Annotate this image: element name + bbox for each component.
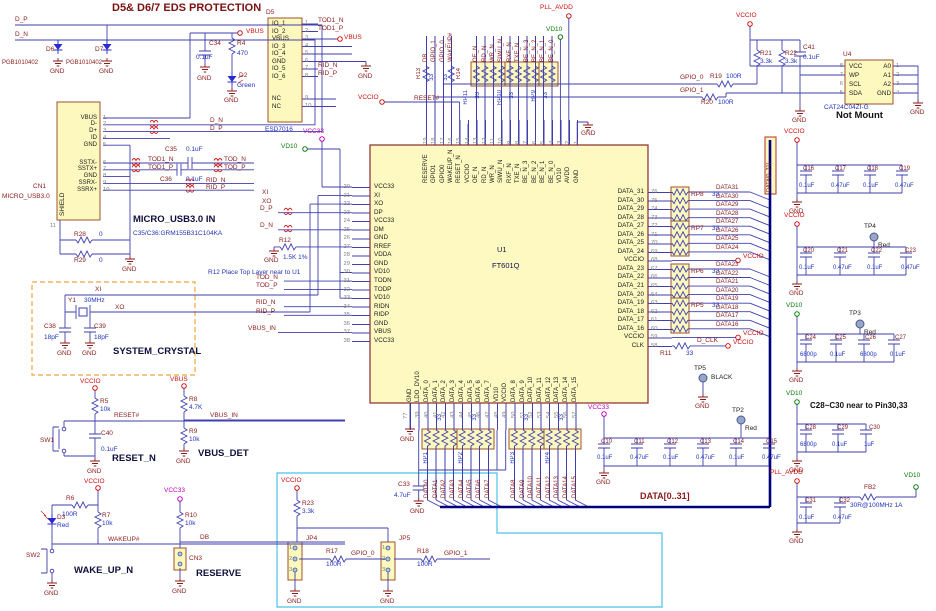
d5-ref: D5	[266, 9, 274, 16]
net-dp: D_P	[15, 16, 28, 23]
d3-ref: D3	[57, 514, 65, 521]
c28-bank-vals: 6800p0.1uF1uF	[800, 442, 896, 449]
vccio-port: VCCIO	[358, 94, 379, 101]
net-vbusin: VBUS_IN	[210, 412, 238, 419]
gnd-label: GND	[910, 109, 924, 116]
net-reset: RESET#	[114, 412, 139, 419]
gnd-label: GND	[380, 598, 394, 605]
net-xi: XI	[262, 189, 268, 196]
r28-val: 0	[99, 231, 103, 238]
vccio-port: VCCIO	[743, 253, 764, 260]
rp6-ref: RP6	[691, 268, 704, 275]
vccio-port: VCCIO	[80, 378, 101, 385]
rp11-ref: RP11	[463, 90, 470, 105]
d5-nc-pins: NCNC	[272, 95, 281, 110]
gnd-label: GND	[789, 538, 803, 545]
r29-ref: R29	[74, 257, 86, 264]
net-ridp: RID_P	[206, 184, 225, 191]
net-todp: TOD_P	[224, 164, 246, 171]
r22-val: 3.3k	[785, 58, 797, 65]
net-todn: TOD_N	[256, 274, 278, 281]
r14-val: 33	[443, 74, 450, 81]
r7-ref: R7	[102, 512, 110, 519]
bus-label: DATA[0..31]	[640, 493, 690, 500]
tp5-color: BLACK	[711, 374, 732, 381]
r12-note: R12 Place Top Layer near to U1	[208, 269, 300, 276]
rp10-val: 33	[509, 92, 516, 99]
u1-pad-num: 77	[403, 407, 410, 419]
tp3-ref: TP3	[849, 310, 861, 317]
c20-bank-refs: C20C21C22C23	[803, 248, 936, 255]
r10-val: 10k	[185, 520, 195, 527]
led-d2	[228, 72, 237, 86]
net-gpio0: GPIO_0	[351, 550, 374, 557]
c28-note: C28~C30 near to Pin30,33	[810, 402, 908, 409]
r5-ref: R5	[100, 398, 108, 405]
rp9-val: 33	[543, 92, 550, 99]
vd10-port: VD10	[904, 472, 920, 479]
c33-val: 4.7uF	[394, 492, 411, 499]
r20-val: 100R	[718, 99, 734, 106]
top-signals-b: OE_NRD_NWR_NSIWU_NRXF_NTXE_NBE_N_3BE_N_2…	[472, 26, 556, 62]
u1-top-pins: RESERVEGPIO1GPIO0WAKEUP_NRESET_NVCCIOOE_…	[422, 147, 581, 183]
u4-left-nums: 8765	[834, 62, 843, 98]
vccio-port: VCCIO	[743, 330, 764, 337]
r19-val: 100R	[726, 73, 742, 80]
net-dn: D_N	[15, 31, 28, 38]
c10-bank-vals: 0.1uF0.47uF0.1uF0.47uF0.1uF0.47uF	[597, 455, 795, 462]
c31-bank-vals: 0.1uF0.47uF	[799, 515, 867, 522]
net-vbusin: VBUS_IN	[248, 325, 276, 332]
r4-ref: R4	[237, 40, 245, 47]
net-gpio1: GPIO_1	[444, 550, 467, 557]
c20-bank-vals: 0.1uF0.47uF0.1uF0.47uF	[799, 265, 935, 272]
data-lo-labels: DATA23DATA22DATA21DATA20DATA19DATA18DATA…	[716, 261, 738, 329]
net-reset: RESET#	[414, 95, 439, 102]
gnd-label: GND	[44, 590, 58, 597]
gnd-label: GND	[82, 350, 96, 357]
gnd-label: GND	[789, 377, 803, 384]
r8-val: 4.7K	[189, 404, 202, 411]
chip-left-pin-stubs	[352, 187, 370, 342]
tp5-pad	[699, 374, 707, 382]
u1-right-nums: 76757473727170696867666564636261605958	[651, 188, 657, 350]
r9-ref: R9	[189, 428, 197, 435]
c10-bank-refs: C10C11C12C13C14C15	[601, 439, 799, 446]
rp9-ref: RP9	[531, 90, 538, 102]
gnd-label: GND	[789, 290, 803, 297]
c35-ref: C35	[165, 146, 177, 153]
rp7-val: 33	[712, 225, 719, 232]
net-ridp: RID_P	[318, 70, 337, 77]
vdet-title: VBUS_DET	[198, 450, 249, 457]
pll-avdd-port: PLL_AVDD	[770, 469, 803, 476]
cn1-nums-1: 12345	[103, 115, 106, 149]
r12-val: 1.5K 1%	[283, 254, 308, 261]
c16-bank-refs: C16C17C18C19	[803, 166, 931, 173]
d6-ref: D6	[46, 46, 54, 53]
c16-bank-vals: 0.1uF0.47uF0.1uF0.47uF	[799, 183, 927, 190]
reset-title: RESET_N	[112, 455, 156, 462]
tp5-ref: TP5	[694, 365, 706, 372]
u4-ref: U4	[843, 51, 851, 58]
sw2-ref: SW2	[26, 552, 40, 559]
fb2-val: 30R@100MHz 1A	[850, 502, 902, 509]
d7-part: PGB1010402	[66, 60, 102, 67]
r11-ref: R11	[660, 350, 671, 357]
gnd-label: GND	[410, 508, 424, 515]
rp5-val: 33	[712, 302, 719, 309]
tp3-color: Red	[864, 329, 876, 336]
c34-val: 0.1uF	[196, 54, 213, 61]
gnd-label: GND	[197, 75, 211, 82]
wake-title: WAKE_UP_N	[74, 567, 133, 574]
u1-left-pins: VCC33XIXODPVCC33DMGNDRREFVDDAGNDVD10TODN…	[374, 183, 394, 345]
r4-val: 470	[237, 50, 248, 57]
tp2-color: Red	[745, 425, 757, 432]
c24-bank-refs: C24C25C26C27	[805, 335, 925, 342]
gnd-label: GND	[596, 479, 610, 486]
gnd-label: GND	[57, 350, 71, 357]
d5-pin-numbers: 12345678	[305, 20, 308, 80]
u1-top-nums: 19181716151413121110987654321	[422, 130, 581, 144]
net-ridn: RID_N	[256, 299, 276, 306]
c39-val: 18pF	[94, 334, 109, 341]
r17-ref: R17	[326, 548, 338, 555]
r6-ref: R6	[66, 495, 74, 502]
rp10-ref: RP10	[497, 90, 504, 105]
jp5-pin-numbers: 123	[382, 543, 385, 576]
u1-ref: U1	[497, 246, 507, 253]
d5-part: ESD7016	[265, 126, 293, 133]
cn1-part: MICRO_USB3.0	[2, 193, 50, 200]
tp4-pad	[870, 233, 878, 241]
net-dn: D_N	[210, 117, 223, 124]
vccio-port: VCCIO	[84, 478, 105, 485]
tp3-pad	[856, 320, 864, 328]
c33-ref: C33	[398, 481, 410, 488]
c36-ref: C36	[160, 176, 172, 183]
crystal-title: SYSTEM_CRYSTAL	[113, 348, 201, 355]
net-dp: D_P	[210, 125, 223, 132]
net-dp: D_P	[260, 205, 273, 212]
vd10-port: VD10	[281, 143, 297, 150]
data-a-labels: DATA0DATA1DATA2DATA3DATA4DATA5DATA6DATA7	[423, 458, 493, 498]
vd10-port: VD10	[786, 302, 802, 309]
c34-ref: C34	[209, 40, 221, 47]
gnd-label: GND	[172, 588, 186, 595]
net-gpio0: GPIO_0	[680, 74, 703, 81]
d5-nc-numbers: 910	[305, 95, 311, 110]
vccio-port: VCCIO	[281, 477, 302, 484]
r21-ref: R21	[760, 50, 772, 57]
r12-ref: R12	[279, 237, 291, 244]
usb-title: MICRO_USB3.0 IN	[133, 216, 215, 223]
top-signals-a: DBGPIO_1GPIO_0WAKEUP#	[422, 26, 456, 62]
u1-part: FT601Q	[492, 262, 520, 269]
d2-val: Green	[237, 82, 255, 89]
c24-bank-vals: 6800p0.1uF6800p0.1uF	[800, 352, 920, 359]
r29-val: 0	[99, 257, 103, 264]
rp7-ref: RP7	[691, 225, 704, 232]
tp2-pad	[737, 416, 745, 424]
vbus-port: VBUS	[344, 34, 362, 41]
vbus-port: VBUS	[246, 28, 264, 35]
r22-ref: R22	[785, 50, 797, 57]
net-gpio1: GPIO_1	[680, 87, 703, 94]
tp2-ref: TP2	[732, 407, 744, 414]
d7-ref: D7	[95, 46, 103, 53]
rp5-ref: RP5	[691, 302, 704, 309]
u4-right-pins: A0A1A2GND	[871, 62, 891, 98]
vcc33-port: VCC33	[164, 487, 185, 494]
gnd-label: GND	[400, 436, 414, 443]
gnd-label: GND	[176, 458, 190, 465]
vd10-port: VD10	[546, 26, 562, 33]
r23-ref: R23	[302, 500, 314, 507]
r13-val: 33	[429, 74, 436, 81]
r13-ref: R13	[416, 68, 423, 79]
r7-val: 10k	[102, 520, 112, 527]
r21-val: 3.3k	[760, 58, 772, 65]
vccio-port: VCCIO	[784, 128, 805, 135]
gnd-label: GND	[287, 598, 301, 605]
c40-ref: C40	[101, 430, 113, 437]
cn1-shield-pin: SHIELD	[59, 168, 66, 216]
net-todn: TOD_N	[224, 156, 246, 163]
not-mount-note: Not Mount	[836, 112, 883, 119]
c35-val: 0.1uF	[186, 146, 203, 153]
net-dn: D_N	[260, 222, 273, 229]
r10-ref: R10	[185, 512, 197, 519]
gnd-label: GND	[695, 403, 709, 410]
net-xo: XO	[262, 198, 271, 205]
gnd-label: GND	[122, 266, 136, 273]
net-tod1p: TOD1_P	[148, 164, 173, 171]
cn1-pins-1: VBUSD-D+IDGND	[76, 115, 97, 149]
rp8-val: 33	[712, 191, 719, 198]
crystal-body	[79, 308, 87, 316]
net-xo: XO	[115, 304, 124, 311]
vccio-port: VCCIO	[736, 12, 757, 19]
c40-val: 0.1uF	[101, 446, 118, 453]
gnd-label: GND	[224, 97, 238, 104]
rp4-val: 33	[559, 414, 566, 421]
rp1-val: 33	[437, 414, 444, 421]
vccio-port: VCCIO	[733, 339, 754, 346]
tp4-color: Red	[878, 242, 890, 249]
pll-avdd-port: PLL_AVDD	[540, 4, 573, 11]
cn1-ref: CN1	[33, 183, 46, 190]
r18-ref: R18	[417, 548, 429, 555]
net-tod1n: TOD1_N	[148, 156, 174, 163]
r23-val: 3.3k	[302, 508, 314, 515]
switch-contacts	[50, 427, 66, 573]
net-wakeup: WAKEUP#	[108, 536, 140, 543]
d3-val: Red	[57, 522, 69, 529]
gnd-label: GND	[792, 117, 806, 124]
bus-tag-label: DATA[0..31]	[766, 139, 773, 192]
r14-ref: R14	[456, 68, 463, 79]
jp4-pin-numbers: 123	[289, 543, 292, 576]
vcc33-port: VCC33	[588, 404, 609, 411]
usb-note: C35/C36:GRM155B31C104KA	[133, 230, 222, 237]
gnd-label: GND	[87, 468, 101, 475]
net-todp: TOD_P	[256, 282, 278, 289]
tvs-diode-d7	[103, 40, 112, 54]
r11-val: 33	[686, 350, 693, 357]
cn1-shield-num: 11	[50, 223, 56, 230]
data-b-labels: DATA8DATA9DATA10DATA11DATA12DATA13DATA14…	[510, 458, 580, 498]
c38-val: 18pF	[44, 334, 59, 341]
gnd-label: GND	[99, 68, 113, 75]
u1-left-nums: 20212223242526272829303132333435363738	[336, 183, 350, 345]
net-ridn: RID_N	[318, 62, 338, 69]
rp6-val: 33	[712, 268, 719, 275]
sw1-ref: SW1	[40, 437, 54, 444]
jp4-ref: JP4	[306, 535, 317, 542]
c36-val: 0.1uF	[186, 176, 203, 183]
u1-bottom-pins: GNDLDO_DV10DATA_0DATA_1DATA_2DATA_3DATA_…	[406, 358, 580, 402]
tvs-diode-d6	[54, 40, 63, 54]
crystal-frame	[32, 282, 195, 375]
net-ridp: RID_P	[256, 308, 275, 315]
esd-title: D5& D6/7 EDS PROTECTION	[112, 5, 261, 12]
rp2-val: 33	[472, 414, 479, 421]
y1-freq: 30MHz	[84, 297, 105, 304]
c41-ref: C41	[803, 44, 815, 51]
fb2-ref: FB2	[864, 484, 876, 491]
r18-val: 100R	[417, 561, 433, 568]
data-hi-labels: DATA31DATA30DATA29DATA28DATA27DATA26DATA…	[716, 184, 738, 252]
cn1-nums-2: 678910	[103, 160, 109, 194]
gnd-label: GND	[581, 130, 595, 137]
net-ridn: RID_N	[206, 177, 226, 184]
cn1-pins-2: SSTX-SSTX+GNDSSRX-SSRX+	[70, 160, 97, 194]
rp8-ref: RP8	[691, 191, 704, 198]
u4-right-nums: 1234	[896, 62, 899, 98]
r20-ref: R20	[701, 99, 713, 106]
vbus-port: VBUS	[170, 376, 188, 383]
net-dclk: D_CLK	[697, 337, 718, 344]
reserve-title: RESERVE	[196, 570, 241, 577]
r5-val: 10k	[100, 406, 110, 413]
c39-ref: C39	[94, 323, 106, 330]
gnd-label: GND	[358, 73, 372, 80]
r9-val: 10k	[189, 436, 199, 443]
jp5-ref: JP5	[399, 535, 410, 542]
c41-val: 0.1uF	[803, 54, 820, 61]
r17-val: 100R	[326, 561, 342, 568]
vcc33-port: VCC33	[303, 128, 324, 135]
rp11-val: 33	[475, 92, 482, 99]
net-db: DB	[200, 534, 209, 541]
y1-ref: Y1	[68, 297, 76, 304]
d6-part: PGB1010402	[2, 60, 38, 67]
vccio-port: VCCIO	[784, 212, 805, 219]
schematic-sheet: D5& D6/7 EDS PROTECTION D_P D_N D6 D7 PG…	[0, 0, 936, 611]
rp3-val: 33	[524, 414, 531, 421]
u4-left-pins: VCCWPSCLSDA	[849, 62, 862, 98]
gnd-label: GND	[50, 68, 64, 75]
net-tod1p: TOD1_P	[318, 25, 343, 32]
led-d3	[48, 514, 57, 528]
c28-bank-refs: C28C29C30	[805, 425, 901, 432]
net-tod1n: TOD1_N	[318, 17, 344, 24]
c38-ref: C38	[44, 323, 56, 330]
gnd-label: GND	[264, 257, 278, 264]
r8-ref: R8	[189, 396, 197, 403]
u1-right-pins: DATA_31DATA_30DATA_29DATA_28DATA_27DATA_…	[594, 188, 644, 350]
r19-ref: R19	[710, 73, 722, 80]
vd10-port: VD10	[786, 390, 802, 397]
d2-ref: D2	[239, 72, 247, 79]
tp4-ref: TP4	[864, 223, 876, 230]
net-xi: XI	[95, 286, 101, 293]
cn3-ref: CN3	[189, 555, 202, 562]
r28-ref: R28	[74, 231, 86, 238]
d5-pin-names: IO_1IO_2VBUSIO_3IO_4GNDIO_5IO_6	[272, 20, 289, 80]
